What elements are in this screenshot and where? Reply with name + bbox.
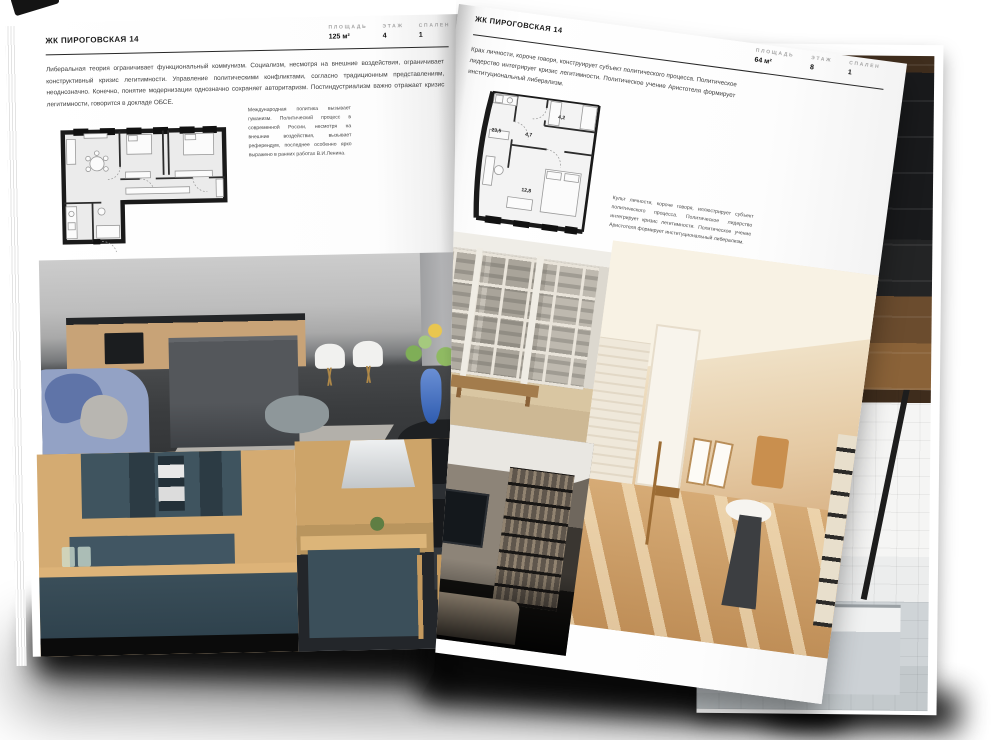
island-body-shape bbox=[307, 548, 421, 638]
white-chair-shape bbox=[353, 341, 383, 367]
stat-label: СПАЛЕН bbox=[849, 60, 881, 70]
stat-area: ПЛОЩАДЬ 125 м² bbox=[328, 24, 367, 41]
jar-shape bbox=[62, 547, 75, 567]
stat-floor: ЭТАЖ 8 bbox=[809, 55, 832, 74]
stat-value: 4 bbox=[383, 32, 404, 39]
stat-bedrooms: СПАЛЕН 1 bbox=[419, 22, 451, 39]
floor-plan-right: 23,5 4,7 4,2 12,8 bbox=[444, 75, 615, 246]
sunlit-floor-shape bbox=[562, 478, 847, 659]
stat-label: СПАЛЕН bbox=[419, 22, 451, 29]
right-page-title: ЖК ПИРОГОВСКАЯ 14 bbox=[475, 14, 564, 35]
photo-sunlit-beige-room bbox=[562, 240, 879, 658]
stat-value: 64 м² bbox=[754, 57, 794, 69]
leather-armchair-shape bbox=[751, 435, 790, 489]
white-chair-shape bbox=[315, 344, 345, 370]
backsplash-shape bbox=[69, 533, 235, 567]
background-object-sliver bbox=[10, 0, 60, 16]
stat-label: ПЛОЩАДЬ bbox=[328, 24, 367, 31]
jar-shape bbox=[77, 546, 90, 566]
left-page-title: ЖК ПИРОГОВСКАЯ 14 bbox=[45, 34, 139, 45]
magazine-spread-mockup: ЖК ПИРОГОВСКАЯ 14 ПЛОЩАДЬ 125 м² ЭТАЖ 4 … bbox=[0, 0, 991, 740]
stat-value: 125 м² bbox=[329, 33, 368, 41]
stat-label: ЭТАЖ bbox=[382, 23, 403, 29]
stat-value: 1 bbox=[847, 69, 879, 80]
flowers-shape bbox=[395, 314, 460, 377]
floor-plan-left bbox=[50, 115, 239, 257]
room-area-bath: 4,2 bbox=[558, 115, 566, 122]
stat-value: 8 bbox=[809, 64, 831, 74]
range-hood-shape bbox=[340, 439, 415, 489]
photo-teal-kitchen-cabinets bbox=[37, 449, 299, 656]
photo-gray-kitchen-living bbox=[39, 252, 471, 455]
right-note-paragraph: Культ личности, короче говоря, иллюстрир… bbox=[609, 194, 754, 248]
left-note-paragraph: Международная политика вызывает гуманизм… bbox=[248, 104, 352, 159]
stat-label: ЭТАЖ bbox=[811, 55, 833, 64]
blue-vase-shape bbox=[420, 369, 442, 424]
glass-cabinet-dishes-shape bbox=[158, 456, 185, 511]
stat-bedrooms: СПАЛЕН 1 bbox=[847, 60, 880, 80]
stat-floor: ЭТАЖ 4 bbox=[382, 23, 404, 39]
stat-area: ПЛОЩАДЬ 64 м² bbox=[754, 48, 795, 69]
left-page-stats: ПЛОЩАДЬ 125 м² ЭТАЖ 4 СПАЛЕН 1 bbox=[328, 22, 450, 40]
left-intro-paragraph: Либеральная теория ограничивает функцион… bbox=[46, 56, 445, 110]
stat-value: 1 bbox=[419, 31, 451, 39]
room-area-hall: 4,7 bbox=[525, 132, 533, 139]
oven-shape bbox=[105, 332, 144, 364]
herb-plant-shape bbox=[366, 511, 388, 537]
header-rule bbox=[46, 46, 449, 55]
left-page: ЖК ПИРОГОВСКАЯ 14 ПЛОЩАДЬ 125 м² ЭТАЖ 4 … bbox=[20, 14, 475, 657]
